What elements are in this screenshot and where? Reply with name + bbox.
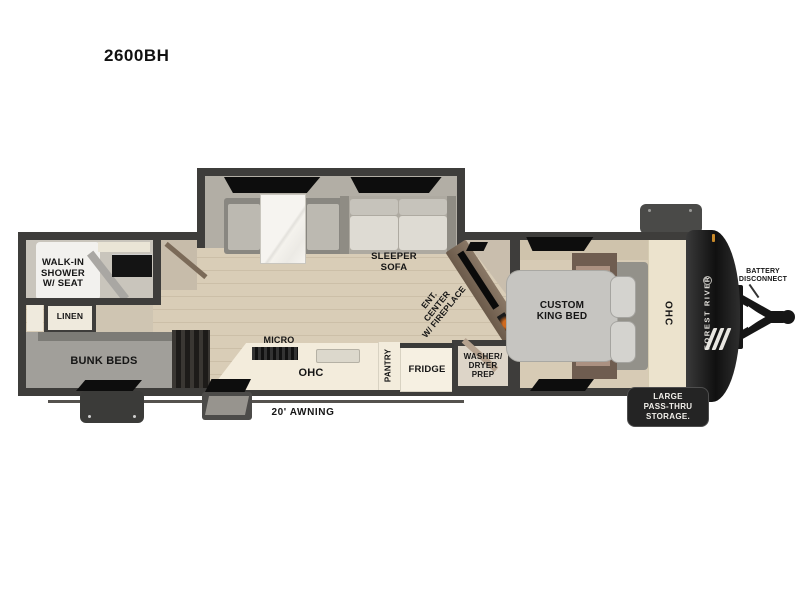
pass-thru-storage-label: LARGE PASS-THRU STORAGE.	[644, 392, 693, 422]
linen-cabinet	[27, 303, 43, 331]
micro-label: MICRO	[254, 335, 304, 345]
pillow	[610, 321, 636, 363]
floorplan-canvas: 2600BH 20' AWNING WALK-IN SHOWER W/ SEAT…	[0, 0, 800, 600]
linen-label: LINEN	[46, 312, 94, 322]
bathroom-cabinet	[98, 242, 150, 252]
kitchen-sink	[316, 349, 360, 363]
awning-label: 20' AWNING	[253, 407, 353, 418]
dinette-bench	[303, 198, 343, 254]
window-icon	[76, 380, 142, 391]
sofa-armrest	[340, 196, 349, 254]
sleeper-sofa-label: SLEEPER SOFA	[364, 252, 424, 273]
sofa-seat-cushion	[399, 216, 447, 250]
brand-emblem-icon	[703, 276, 712, 285]
clearance-light-icon	[712, 234, 715, 242]
bench-cushion	[228, 204, 260, 250]
pantry-label: PANTRY	[385, 333, 394, 397]
bunk-bed-shadow	[38, 332, 172, 341]
baggage-door	[80, 391, 144, 423]
washer-dryer-label: WASHER/ DRYER PREP	[455, 353, 511, 380]
bunk-dresser	[96, 302, 153, 332]
wardrobe	[172, 330, 210, 388]
entry-door-icon	[205, 379, 251, 392]
sofa-back-cushion	[350, 199, 398, 215]
ohc-bedroom-label: OHC	[662, 286, 673, 342]
entry-step	[202, 392, 252, 420]
pass-thru-storage-badge: LARGE PASS-THRU STORAGE.	[627, 387, 709, 427]
fridge-top-edge	[400, 343, 454, 348]
screw-icon	[689, 209, 692, 212]
microwave-cooktop	[252, 347, 298, 360]
battery-disconnect-label: BATTERY DISCONNECT	[731, 268, 795, 284]
shower-label: WALK-IN SHOWER W/ SEAT	[33, 258, 93, 290]
bathroom-wall	[153, 240, 161, 305]
bench-cushion	[307, 204, 339, 250]
step-tread	[205, 396, 249, 415]
dinette-table	[260, 194, 306, 264]
king-bed-label: CUSTOM KING BED	[512, 300, 612, 322]
pillow	[610, 276, 636, 318]
screw-icon	[648, 209, 651, 212]
screw-icon	[133, 415, 136, 418]
sofa-back-cushion	[399, 199, 447, 215]
model-title: 2600BH	[104, 46, 169, 66]
fridge-label: FRIDGE	[400, 365, 454, 376]
screw-icon	[88, 415, 91, 418]
sleeper-sofa	[340, 196, 456, 254]
ohc-kitchen-label: OHC	[286, 367, 336, 379]
bathroom-vanity	[112, 254, 152, 277]
sofa-seat-cushion	[350, 216, 398, 250]
bunk-beds-label: BUNK BEDS	[54, 355, 154, 367]
dinette-bench	[224, 198, 264, 254]
window-icon	[530, 379, 594, 391]
